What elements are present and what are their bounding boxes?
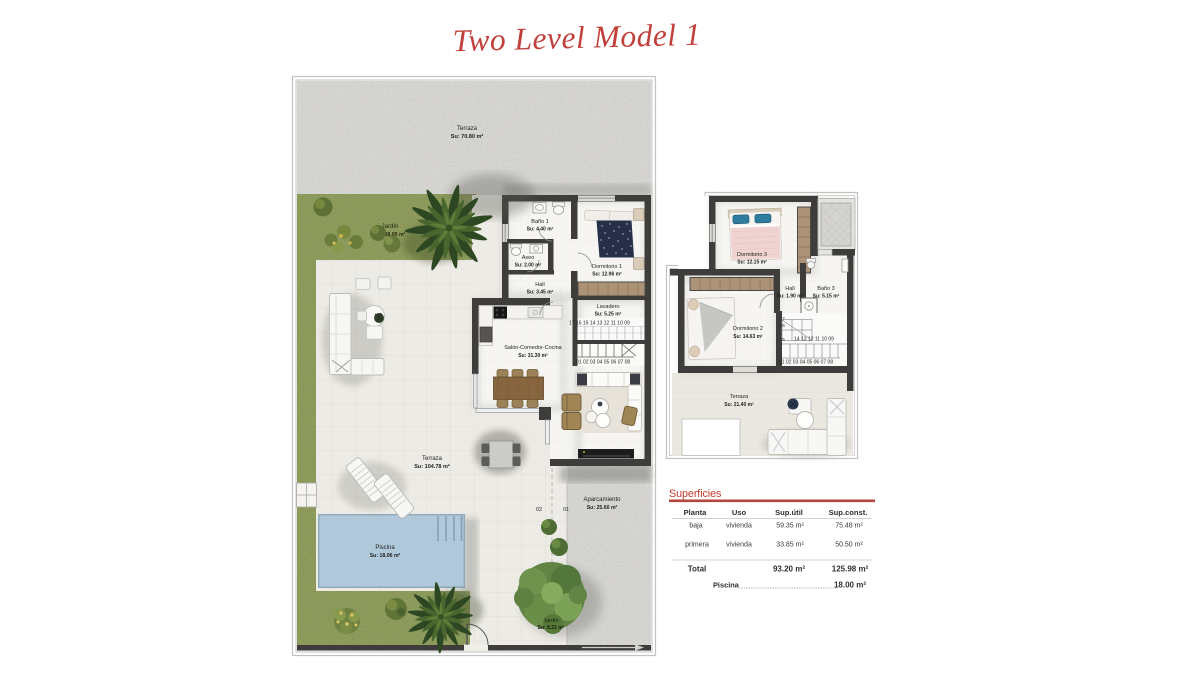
svg-text:Sup.const.: Sup.const. [829, 508, 868, 517]
svg-text:Su: 1.90 m²: Su: 1.90 m² [777, 294, 804, 300]
svg-text:Su: 31.30 m²: Su: 31.30 m² [518, 353, 548, 359]
svg-text:Hall: Hall [535, 282, 544, 288]
svg-text:Su: 18.06 m²: Su: 18.06 m² [370, 553, 401, 559]
svg-text:Su: 70.80 m²: Su: 70.80 m² [451, 133, 484, 140]
svg-text:Su: 25.60 m²: Su: 25.60 m² [587, 505, 618, 511]
svg-text:17 16 15 14 13 12 11 10 09: 17 16 15 14 13 12 11 10 09 [569, 321, 630, 327]
svg-text:Su: 21.40 m²: Su: 21.40 m² [724, 402, 754, 408]
svg-text:Uso: Uso [732, 508, 747, 517]
svg-text:Total: Total [688, 565, 707, 574]
svg-text:vivienda: vivienda [726, 542, 752, 549]
svg-text:vivienda: vivienda [726, 523, 752, 530]
svg-text:Dormitorio 2: Dormitorio 2 [733, 326, 763, 332]
svg-text:01 02 03 04 05 06 07 08: 01 02 03 04 05 06 07 08 [576, 360, 630, 366]
svg-text:Aseo: Aseo [522, 255, 535, 261]
svg-text:Aparcamiento: Aparcamiento [583, 497, 621, 503]
svg-text:Terraza: Terraza [457, 126, 478, 132]
svg-text:75.48 m²: 75.48 m² [835, 523, 863, 530]
svg-text:Su: 12.15 m²: Su: 12.15 m² [737, 260, 767, 266]
svg-text:33.85 m²: 33.85 m² [776, 542, 804, 549]
svg-text:Su: 104.78 m²: Su: 104.78 m² [414, 463, 450, 470]
svg-text:Su: 5.25 m²: Su: 5.25 m² [595, 312, 622, 318]
svg-text:Terraza: Terraza [730, 394, 749, 400]
svg-text:Su: 4.40 m²: Su: 4.40 m² [527, 227, 554, 233]
svg-text:Lavadero: Lavadero [597, 304, 620, 310]
svg-text:93.20 m²: 93.20 m² [773, 565, 805, 574]
svg-text:Dormitorio 1: Dormitorio 1 [592, 264, 622, 270]
svg-text:Baño 1: Baño 1 [531, 219, 548, 225]
svg-text:Su: 3.45 m²: Su: 3.45 m² [527, 290, 554, 296]
svg-text:Superficies: Superficies [669, 488, 722, 500]
svg-text:02: 02 [536, 507, 542, 513]
svg-text:01: 01 [563, 507, 569, 513]
svg-text:Piscina: Piscina [713, 581, 740, 590]
svg-text:Su: 14.63 m²: Su: 14.63 m² [733, 334, 763, 340]
svg-text:Su: 5.15 m²: Su: 5.15 m² [813, 294, 840, 300]
svg-text:Baño 3: Baño 3 [817, 286, 834, 292]
svg-text:Two Level Model 1: Two Level Model 1 [452, 17, 701, 58]
svg-text:125.98 m²: 125.98 m² [832, 565, 869, 574]
svg-text:Salón-Comedor-Cocina: Salón-Comedor-Cocina [504, 345, 562, 351]
svg-text:01 02 03 04 05 06 07 08: 01 02 03 04 05 06 07 08 [779, 360, 833, 366]
svg-text:50.50 m²: 50.50 m² [835, 542, 863, 549]
svg-text:15: 15 [780, 337, 786, 343]
svg-text:16: 16 [780, 323, 786, 329]
svg-text:Piscina: Piscina [375, 545, 395, 551]
svg-text:17: 17 [780, 317, 786, 323]
svg-text:primera: primera [685, 542, 709, 549]
svg-text:Sup.útil: Sup.útil [775, 508, 803, 517]
svg-text:baja: baja [689, 523, 702, 530]
svg-text:18.00 m²: 18.00 m² [834, 581, 866, 590]
svg-text:Planta: Planta [684, 508, 708, 517]
svg-text:Jardín: Jardín [544, 618, 559, 624]
svg-text:Hall: Hall [785, 286, 794, 292]
svg-text:Su: 8.21 m²: Su: 8.21 m² [538, 625, 565, 631]
svg-text:59.35 m²: 59.35 m² [776, 523, 804, 530]
svg-text:Su: 12.96 m²: Su: 12.96 m² [592, 272, 622, 278]
svg-text:Su: 2.00 m²: Su: 2.00 m² [515, 263, 542, 269]
svg-text:14 13 12 11 10 09: 14 13 12 11 10 09 [794, 337, 834, 343]
svg-text:Terraza: Terraza [422, 456, 443, 462]
svg-text:Dormitorio 3: Dormitorio 3 [737, 252, 767, 258]
